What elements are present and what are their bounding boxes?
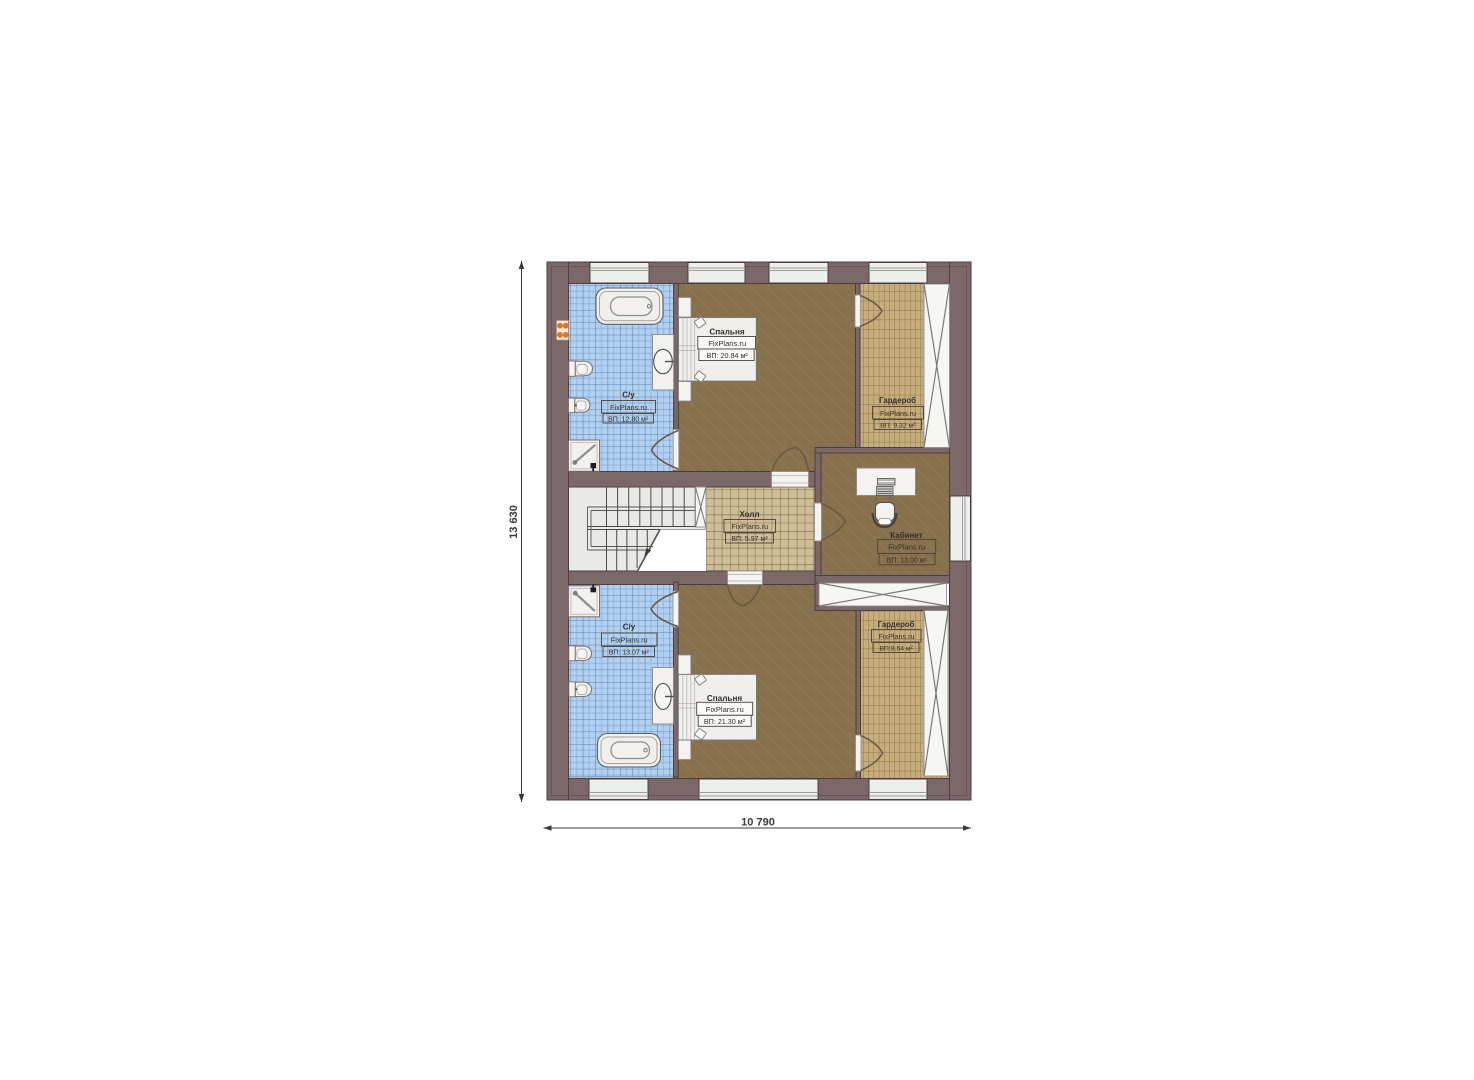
svg-text:Гардероб: Гардероб bbox=[878, 620, 915, 629]
svg-text:Гардероб: Гардероб bbox=[879, 396, 916, 405]
svg-text:ВП:9.54 м²: ВП:9.54 м² bbox=[880, 646, 914, 653]
svg-text:FixPlans.ru: FixPlans.ru bbox=[610, 403, 647, 412]
svg-text:ВП: 20.84 м²: ВП: 20.84 м² bbox=[707, 351, 749, 360]
svg-text:13 630: 13 630 bbox=[508, 505, 520, 539]
svg-text:ВП: 21.30 м²: ВП: 21.30 м² bbox=[704, 717, 746, 726]
svg-text:FixPlans.ru: FixPlans.ru bbox=[879, 632, 915, 641]
svg-text:С/у: С/у bbox=[622, 391, 635, 400]
svg-text:Спальня: Спальня bbox=[709, 328, 745, 337]
svg-text:ВП: 13.00 м²: ВП: 13.00 м² bbox=[887, 558, 928, 565]
svg-text:FixPlans.ru: FixPlans.ru bbox=[706, 705, 744, 714]
svg-text:FixPlans.ru: FixPlans.ru bbox=[880, 409, 916, 418]
svg-text:FixPlans.ru: FixPlans.ru bbox=[888, 543, 925, 552]
svg-text:Холл: Холл bbox=[739, 510, 759, 519]
svg-text:FixPlans.ru: FixPlans.ru bbox=[611, 636, 648, 645]
svg-text:ВП: 5.97 м²: ВП: 5.97 м² bbox=[731, 536, 768, 543]
svg-text:FixPlans.ru: FixPlans.ru bbox=[731, 522, 768, 531]
svg-text:Кабинет: Кабинет bbox=[890, 531, 922, 540]
svg-text:ВП: 13.07 м²: ВП: 13.07 м² bbox=[609, 650, 650, 657]
svg-text:ВП: 9.32 м²: ВП: 9.32 м² bbox=[880, 423, 916, 430]
svg-text:Спальня: Спальня bbox=[707, 694, 743, 703]
svg-text:FixPlans.ru: FixPlans.ru bbox=[708, 339, 746, 348]
svg-text:10 790: 10 790 bbox=[741, 817, 775, 829]
svg-text:С/у: С/у bbox=[623, 623, 636, 632]
svg-text:ВП: 12.80 м²: ВП: 12.80 м² bbox=[608, 416, 649, 423]
